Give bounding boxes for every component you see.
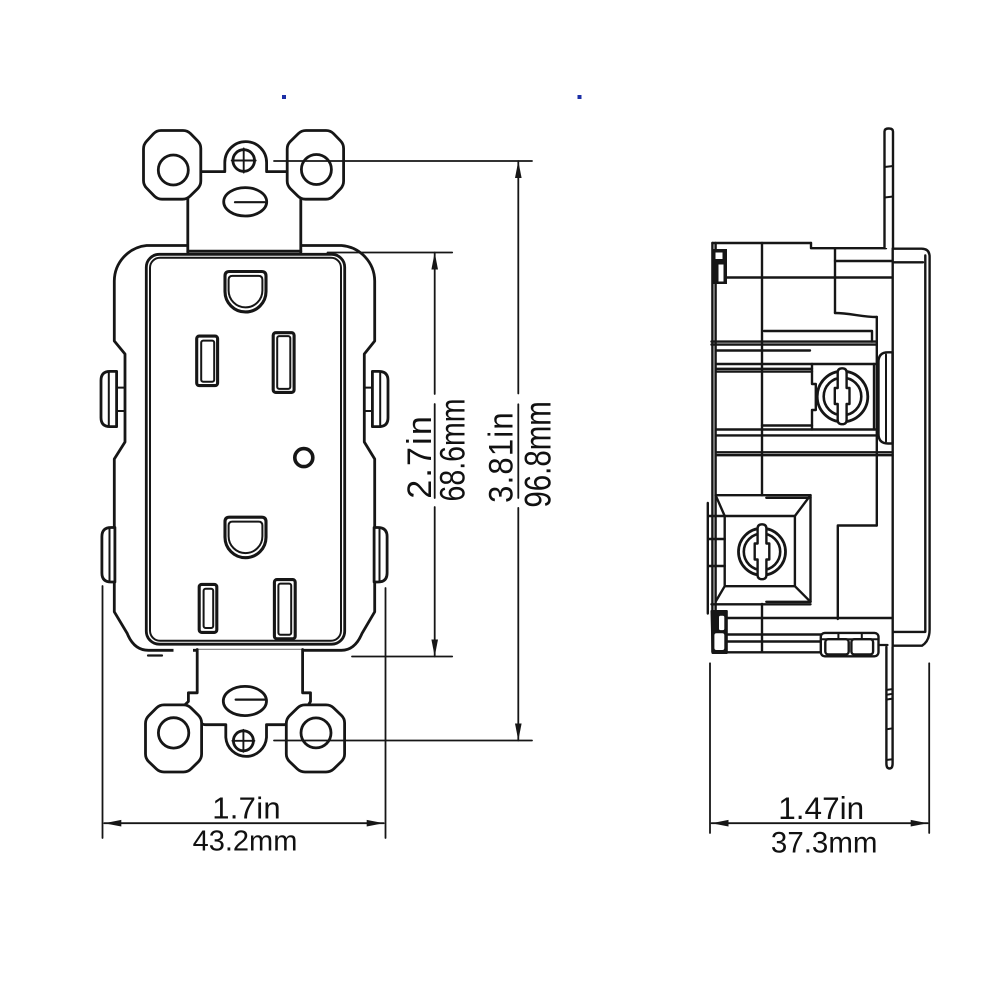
svg-text:96.8mm: 96.8mm <box>518 401 559 508</box>
svg-text:1.7in: 1.7in <box>212 791 281 826</box>
svg-text:37.3mm: 37.3mm <box>771 827 878 860</box>
svg-text:68.6mm: 68.6mm <box>432 399 472 502</box>
svg-text:1.47in: 1.47in <box>778 790 864 826</box>
svg-text:43.2mm: 43.2mm <box>193 826 298 858</box>
svg-text:3.81in: 3.81in <box>482 411 520 503</box>
